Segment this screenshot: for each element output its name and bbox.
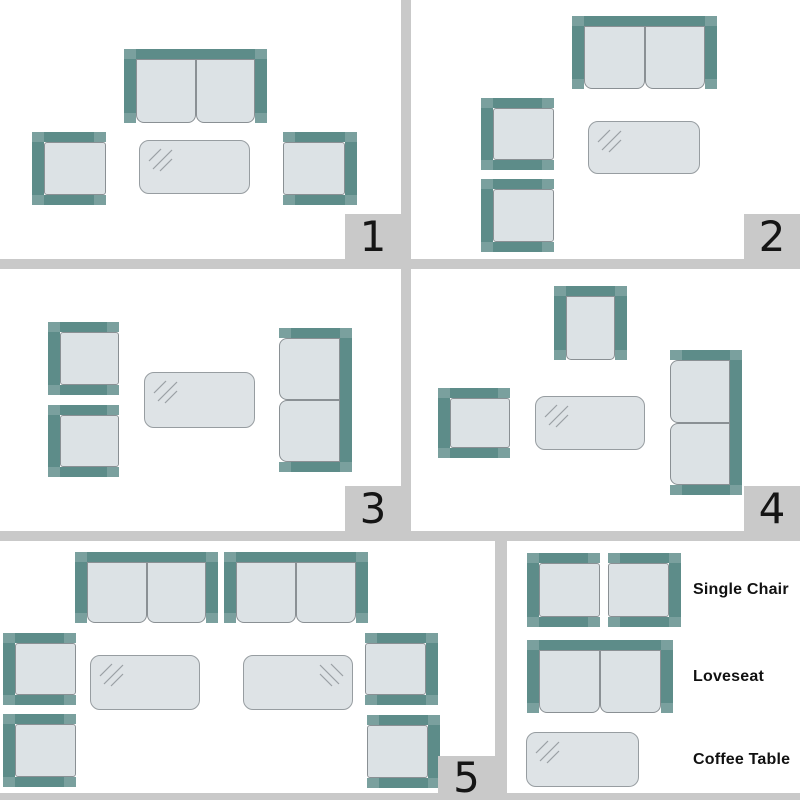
frame-bar <box>224 552 368 562</box>
frame-corner <box>48 467 60 477</box>
cushion <box>539 650 600 713</box>
frame-corner <box>572 79 584 89</box>
legend-label-single-chair: Single Chair <box>693 581 789 599</box>
cushion <box>60 332 119 385</box>
single-chair <box>608 553 681 627</box>
frame-corner <box>730 350 742 360</box>
frame-corner <box>554 350 566 360</box>
cushion <box>236 562 296 623</box>
frame-corner <box>48 322 60 332</box>
frame-corner <box>705 16 717 26</box>
cushion <box>279 338 340 400</box>
cushion <box>645 26 706 89</box>
single-chair <box>365 633 438 705</box>
loveseat <box>224 552 368 623</box>
frame-corner <box>94 132 106 142</box>
cushion <box>60 415 119 467</box>
frame-corner <box>498 388 510 398</box>
frame-corner <box>206 613 218 623</box>
frame-corner <box>3 633 15 643</box>
layout-number-badge-2: 2 <box>744 214 800 259</box>
cushion <box>283 142 345 195</box>
frame-corner <box>670 350 682 360</box>
frame-bar <box>340 328 352 472</box>
loveseat <box>670 350 742 495</box>
frame-corner <box>64 695 76 705</box>
frame-bar <box>554 286 566 360</box>
layout-panel-1: 1 <box>0 0 401 259</box>
legend-label-coffee-table: Coffee Table <box>693 751 790 769</box>
cushion <box>539 563 600 617</box>
frame-corner <box>206 552 218 562</box>
cushion <box>196 59 256 123</box>
frame-corner <box>340 462 352 472</box>
frame-corner <box>255 113 267 123</box>
frame-corner <box>669 617 681 627</box>
frame-corner <box>481 179 493 189</box>
frame-corner <box>527 553 539 563</box>
furniture-layer <box>0 541 495 793</box>
frame-corner <box>107 467 119 477</box>
cushion <box>493 108 554 160</box>
frame-corner <box>279 462 291 472</box>
furniture-layer <box>0 0 401 259</box>
single-chair <box>554 286 627 360</box>
cushion <box>670 360 730 423</box>
frame-corner <box>365 633 377 643</box>
frame-corner <box>498 448 510 458</box>
layout-panel-2: 2 <box>411 0 800 259</box>
glass-shine-lines <box>311 659 347 691</box>
frame-corner <box>588 553 600 563</box>
panel-divider-horizontal-1 <box>0 259 800 269</box>
frame-corner <box>365 695 377 705</box>
layout-number-badge-4: 4 <box>744 486 800 531</box>
furniture-layer <box>0 269 401 531</box>
frame-corner <box>588 617 600 627</box>
frame-corner <box>75 552 87 562</box>
frame-corner <box>75 613 87 623</box>
loveseat <box>75 552 218 623</box>
frame-corner <box>608 553 620 563</box>
frame-corner <box>107 322 119 332</box>
frame-bar <box>527 640 673 650</box>
legend-label-loveseat: Loveseat <box>693 668 764 686</box>
layout-panel-3: 3 <box>0 269 401 531</box>
frame-bar <box>124 49 267 59</box>
frame-corner <box>283 132 295 142</box>
cushion <box>279 400 340 462</box>
frame-corner <box>224 552 236 562</box>
panel-divider-vertical-top <box>401 0 411 269</box>
cushion <box>367 725 428 778</box>
panel-divider-vertical-middle <box>401 269 411 541</box>
glass-shine-lines <box>145 144 181 176</box>
frame-bar <box>730 350 742 495</box>
frame-bar <box>615 286 627 360</box>
single-chair <box>3 714 76 787</box>
frame-corner <box>542 179 554 189</box>
single-chair <box>283 132 357 205</box>
cushion <box>608 563 669 617</box>
cushion <box>365 643 426 695</box>
frame-bar <box>255 49 267 123</box>
furniture-layer <box>411 0 800 259</box>
layout-number: 3 <box>360 488 387 530</box>
cushion <box>450 398 510 448</box>
layout-panel-4: 4 <box>411 269 800 531</box>
frame-corner <box>481 242 493 252</box>
frame-corner <box>426 633 438 643</box>
frame-corner <box>608 617 620 627</box>
single-chair <box>48 405 119 477</box>
frame-corner <box>572 16 584 26</box>
legend-panel: Single Chair Loveseat Coffee Table <box>507 541 800 793</box>
coffee-table <box>144 372 255 428</box>
coffee-table <box>526 732 639 787</box>
panel-divider-horizontal-2 <box>0 531 800 541</box>
frame-bar <box>75 552 218 562</box>
cushion <box>584 26 645 89</box>
frame-corner <box>32 195 44 205</box>
frame-corner <box>527 703 539 713</box>
loveseat <box>527 640 673 713</box>
single-chair <box>527 553 600 627</box>
frame-corner <box>542 98 554 108</box>
cushion <box>566 296 615 360</box>
frame-corner <box>542 160 554 170</box>
frame-corner <box>481 160 493 170</box>
frame-corner <box>64 633 76 643</box>
coffee-table <box>535 396 645 450</box>
frame-corner <box>345 195 357 205</box>
glass-shine-lines <box>150 376 186 408</box>
frame-corner <box>367 715 379 725</box>
layout-number: 1 <box>360 216 387 258</box>
glass-shine-lines <box>541 400 577 432</box>
frame-corner <box>661 640 673 650</box>
layout-number: 2 <box>759 216 786 258</box>
frame-corner <box>661 703 673 713</box>
frame-corner <box>527 617 539 627</box>
frame-corner <box>32 132 44 142</box>
frame-corner <box>705 79 717 89</box>
frame-corner <box>283 195 295 205</box>
cushion <box>670 423 730 486</box>
frame-corner <box>670 485 682 495</box>
frame-bar <box>527 553 539 627</box>
frame-corner <box>64 714 76 724</box>
frame-corner <box>3 714 15 724</box>
frame-corner <box>438 388 450 398</box>
frame-corner <box>107 405 119 415</box>
frame-bar <box>572 16 717 26</box>
frame-bar <box>124 49 136 123</box>
single-chair <box>367 715 440 788</box>
cushion <box>87 562 147 623</box>
furniture-layout-diagram: 1 2 3 4 5 Single Chair Loveseat Coffee T… <box>0 0 800 800</box>
frame-corner <box>554 286 566 296</box>
cushion <box>493 189 554 242</box>
frame-corner <box>279 328 291 338</box>
layout-number-badge-1: 1 <box>345 214 401 259</box>
panel-divider-vertical-bottom <box>495 541 507 800</box>
cushion <box>136 59 196 123</box>
frame-corner <box>48 405 60 415</box>
frame-corner <box>224 613 236 623</box>
loveseat <box>124 49 267 123</box>
coffee-table <box>588 121 700 174</box>
frame-corner <box>255 49 267 59</box>
frame-corner <box>669 553 681 563</box>
coffee-table <box>90 655 200 710</box>
layout-panel-5: 5 <box>0 541 495 793</box>
frame-corner <box>48 385 60 395</box>
cushion <box>600 650 661 713</box>
frame-corner <box>438 448 450 458</box>
single-chair <box>438 388 510 458</box>
frame-corner <box>426 695 438 705</box>
cushion <box>15 724 76 777</box>
glass-shine-lines <box>96 659 132 691</box>
frame-corner <box>3 777 15 787</box>
frame-bar <box>669 553 681 627</box>
frame-corner <box>428 715 440 725</box>
frame-corner <box>481 98 493 108</box>
frame-corner <box>340 328 352 338</box>
single-chair <box>3 633 76 705</box>
layout-number: 4 <box>759 488 786 530</box>
single-chair <box>481 98 554 170</box>
single-chair <box>481 179 554 252</box>
glass-shine-lines <box>532 736 568 768</box>
loveseat <box>279 328 352 472</box>
frame-corner <box>730 485 742 495</box>
frame-corner <box>615 286 627 296</box>
frame-corner <box>527 640 539 650</box>
glass-shine-lines <box>594 125 630 157</box>
cushion <box>147 562 207 623</box>
frame-corner <box>94 195 106 205</box>
frame-corner <box>64 777 76 787</box>
frame-corner <box>124 49 136 59</box>
cushion <box>296 562 356 623</box>
furniture-layer <box>411 269 800 531</box>
frame-corner <box>345 132 357 142</box>
loveseat <box>572 16 717 89</box>
frame-corner <box>367 778 379 788</box>
frame-corner <box>615 350 627 360</box>
layout-number-badge-3: 3 <box>345 486 401 531</box>
single-chair <box>48 322 119 395</box>
frame-corner <box>542 242 554 252</box>
coffee-table <box>243 655 353 710</box>
frame-corner <box>124 113 136 123</box>
frame-corner <box>356 613 368 623</box>
frame-corner <box>107 385 119 395</box>
frame-corner <box>3 695 15 705</box>
cushion <box>44 142 106 195</box>
bottom-edge-strip <box>0 793 800 800</box>
single-chair <box>32 132 106 205</box>
cushion <box>15 643 76 695</box>
frame-corner <box>356 552 368 562</box>
coffee-table <box>139 140 250 194</box>
